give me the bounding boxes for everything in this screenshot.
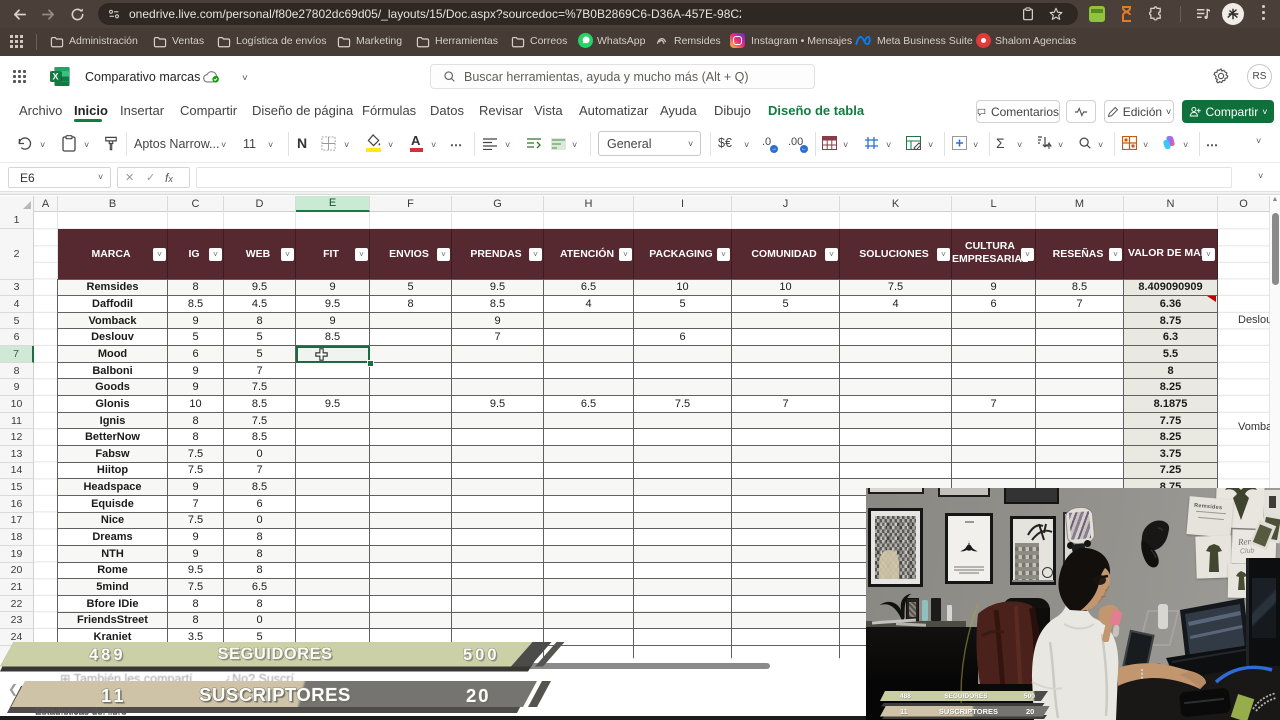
svg-text:X: X — [52, 72, 58, 82]
